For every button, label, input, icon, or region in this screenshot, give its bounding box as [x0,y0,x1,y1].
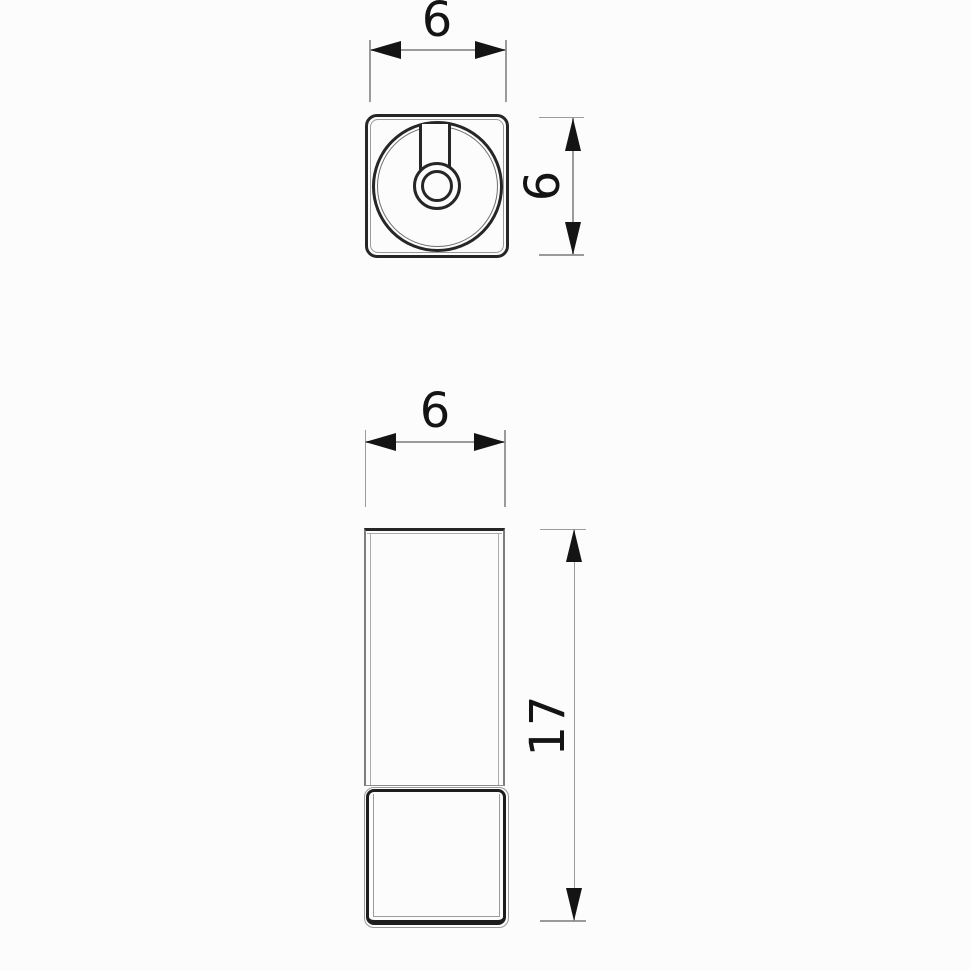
front-cap-inner-edge-right [499,794,500,917]
front-cap-outline [366,789,506,925]
front-body-inner-edge-left [370,533,371,785]
arrowhead-left [370,41,401,59]
center-hole [421,170,453,202]
dimension-label-front-height: 17 [524,686,572,766]
front-cap-inner-edge-left [373,794,374,917]
dimension-label-top-height: 6 [519,155,567,217]
arrowhead-down [566,888,582,921]
front-cap-inner-edge-bottom [374,916,500,917]
arrowhead-up [566,529,582,562]
front-body-inner-edge-right [498,533,499,785]
dimension-label-front-width: 6 [405,387,465,435]
dimension-label-top-width: 6 [407,0,467,44]
arrowhead-right [475,41,506,59]
arrowhead-right [474,433,505,451]
arrowhead-up [565,118,581,151]
arrowhead-left [365,433,396,451]
arrowhead-down [565,222,581,255]
drawing-canvas: 6 6 6 17 [0,0,970,970]
front-body-outline [364,528,505,786]
front-body-inner-edge-top [367,533,502,534]
